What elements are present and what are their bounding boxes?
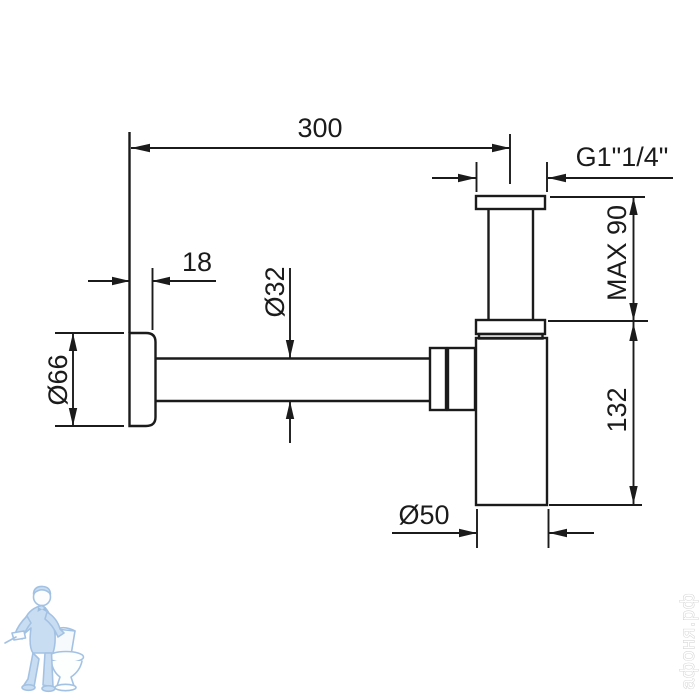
label-body-diameter-50: Ø50 bbox=[398, 500, 449, 530]
arrow-132-bottom bbox=[629, 486, 637, 504]
arrow-d66-bottom bbox=[69, 408, 77, 426]
arrow-18-left bbox=[112, 277, 130, 285]
arrow-d32-top bbox=[286, 340, 294, 358]
label-max-inlet-90: MAX 90 bbox=[602, 205, 632, 301]
arrow-thread-right bbox=[548, 174, 566, 182]
label-thread-g114: G1"1/4" bbox=[576, 142, 669, 172]
technical-drawing-page: 300 G1"1/4" 18 Ø32 Ø66 MAX 90 132 Ø50 аф… bbox=[0, 0, 700, 700]
compression-ring bbox=[430, 348, 446, 410]
trap-body bbox=[476, 338, 547, 505]
label-body-height-132: 132 bbox=[602, 387, 632, 432]
plumber-leg-right bbox=[43, 653, 53, 687]
watermark-text: афоня.рф bbox=[678, 592, 699, 689]
label-reach-300: 300 bbox=[297, 113, 342, 143]
wall-flange bbox=[130, 333, 156, 426]
label-pipe-diameter-32: Ø32 bbox=[260, 266, 290, 317]
arrow-18-right bbox=[152, 277, 170, 285]
top-escutcheon-plate bbox=[476, 196, 545, 209]
label-flange-depth-18: 18 bbox=[182, 247, 212, 277]
arrow-300-right bbox=[492, 144, 510, 152]
arrow-max90-bottom bbox=[629, 303, 637, 321]
label-flange-diameter-66: Ø66 bbox=[43, 354, 73, 405]
arrow-thread-left bbox=[458, 174, 476, 182]
arrow-132-top bbox=[629, 323, 637, 341]
compression-nut bbox=[448, 348, 475, 410]
plumber-shoe-left bbox=[22, 685, 35, 691]
arrow-d66-top bbox=[69, 333, 77, 351]
bottle-trap-drawing: 300 G1"1/4" 18 Ø32 Ø66 MAX 90 132 Ø50 аф… bbox=[0, 0, 700, 700]
plumber-logo bbox=[5, 586, 84, 691]
dimension-lines bbox=[55, 134, 673, 548]
body-top-nut bbox=[476, 320, 545, 334]
arrow-d50-left bbox=[459, 529, 477, 537]
arrow-300-left bbox=[131, 144, 150, 152]
plumber-leg-left bbox=[24, 653, 39, 687]
arrow-d32-bottom bbox=[286, 401, 294, 419]
toilet-base bbox=[55, 684, 76, 690]
arrow-d50-right bbox=[549, 529, 567, 537]
plumber-shoe-right bbox=[42, 686, 55, 692]
dimension-arrows bbox=[69, 144, 638, 537]
trap-outline bbox=[130, 132, 548, 505]
